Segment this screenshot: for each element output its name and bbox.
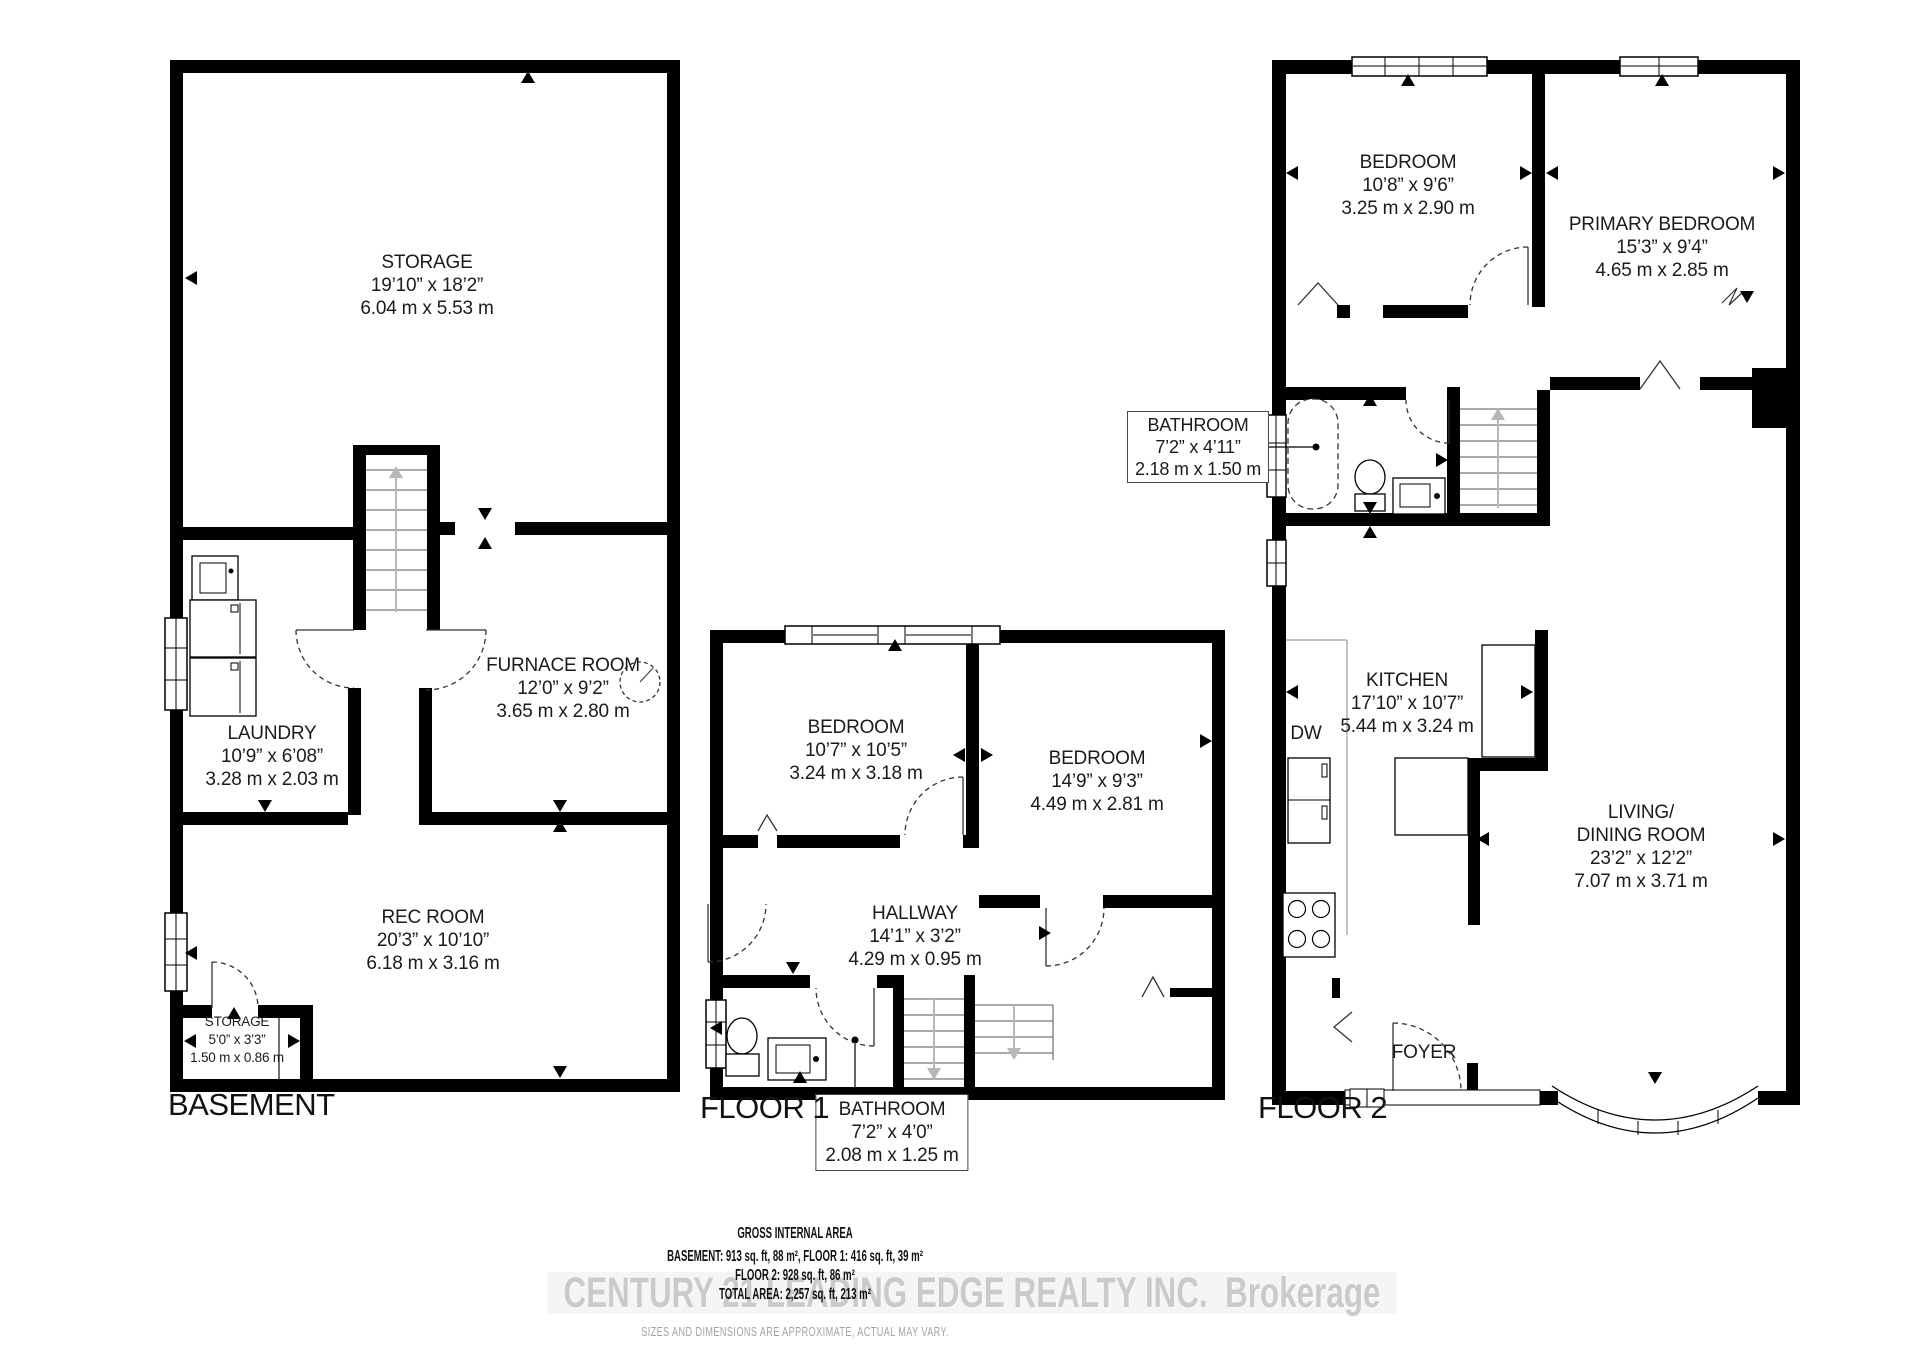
room-name: FURNACE ROOM [486,654,640,677]
floor1-plan [706,626,1225,1100]
room-label-rec-room: REC ROOM 20’3” x 10’10” 6.18 m x 3.16 m [366,906,499,975]
fixtures [726,1018,826,1080]
room-label-bedroom2: BEDROOM 14’9” x 9’3” 4.49 m x 2.81 m [1030,747,1163,816]
room-size-imperial: 15’3” x 9’4” [1569,236,1755,259]
direction-markers [710,639,1212,1083]
bay-window [1552,1086,1758,1135]
room-size-imperial: 5’0” x 3’3” [190,1031,284,1049]
room-label-living-dining: LIVING/ DINING ROOM 23’2” x 12’2” 7.07 m… [1574,801,1707,893]
callout-leader [852,1037,859,1095]
door [816,988,874,1046]
window [1352,57,1487,76]
room-label-bedroom: BEDROOM 10’8” x 9’6” 3.25 m x 2.90 m [1341,151,1474,220]
room-label-bedroom1: BEDROOM 10’7” x 10’5” 3.24 m x 3.18 m [789,716,922,785]
room-label-storage-small: STORAGE 5’0” x 3’3” 1.50 m x 0.86 m [190,1013,284,1067]
staircase [904,999,1053,1080]
stairs-down-arrow [1007,1048,1021,1060]
kitchen-island [1395,758,1468,835]
room-label-storage: STORAGE 19’10” x 18’2” 6.04 m x 5.53 m [360,251,493,320]
dishwasher-label: DW [1290,722,1321,745]
bathroom-callout-floor2: BATHROOM 7’2” x 4’11” 2.18 m x 1.50 m [1127,411,1269,483]
washer [190,600,256,657]
closet-door-glyph [1142,977,1164,997]
stairs-down-arrow [927,1068,941,1080]
floor1-title: FLOOR 1 [700,1090,829,1126]
room-size-imperial: 10’9” x 6’08” [205,745,338,768]
closet-door-glyph [758,815,777,831]
room-size-imperial: 23’2” x 12’2” [1574,847,1707,870]
bathroom-callout-floor1: BATHROOM 7’2” x 4’0” 2.08 m x 1.25 m [815,1094,968,1171]
bathroom-sink [1393,478,1445,514]
toilet [726,1018,759,1076]
window [1267,540,1286,586]
door [905,777,963,835]
room-name: BEDROOM [1030,747,1163,770]
size-disclaimer: SIZES AND DIMENSIONS ARE APPROXIMATE, AC… [641,1324,949,1339]
room-name: STORAGE [360,251,493,274]
gross-area-line: FLOOR 2: 928 sq. ft, 86 m² [667,1266,923,1285]
room-label-hallway: HALLWAY 14’1” x 3’2” 4.29 m x 0.95 m [848,902,981,971]
room-size-imperial: 19’10” x 18’2” [360,274,493,297]
window [1620,57,1698,76]
window [706,1000,726,1068]
floor2-title: FLOOR 2 [1258,1090,1387,1126]
walls [710,630,1225,1100]
room-size-metric: 3.28 m x 2.03 m [205,768,338,791]
room-label-furnace: FURNACE ROOM 12’0” x 9’2” 3.65 m x 2.80 … [486,654,640,723]
stairs-up-arrow [389,466,403,478]
room-size-imperial: 10’8” x 9’6” [1341,174,1474,197]
stairs-up-arrow [1491,408,1505,420]
appliance-abbr: DW [1290,722,1321,745]
closet-door-glyph [1334,1012,1352,1042]
room-name: DINING ROOM [1574,824,1707,847]
gross-area-summary: GROSS INTERNAL AREA BASEMENT: 913 sq. ft… [667,1224,923,1304]
room-name: LAUNDRY [205,722,338,745]
window [785,626,1000,644]
closet-door-glyph [1640,361,1680,389]
door [296,630,354,688]
room-label-primary-bedroom: PRIMARY BEDROOM 15’3” x 9’4” 4.65 m x 2.… [1569,213,1755,282]
gross-area-title: GROSS INTERNAL AREA [667,1224,923,1243]
room-size-metric: 1.50 m x 0.86 m [190,1049,284,1067]
closet-door-glyph [1298,283,1338,305]
room-size-metric: 6.04 m x 5.53 m [360,297,493,320]
room-size-imperial: 12’0” x 9’2” [486,677,640,700]
room-size-metric: 2.18 m x 1.50 m [1135,458,1261,480]
door [1470,247,1528,305]
room-size-imperial: 14’1” x 3’2” [848,925,981,948]
chimney [1752,368,1786,428]
bathroom-sink [768,1038,826,1080]
room-size-metric: 4.49 m x 2.81 m [1030,793,1163,816]
fridge [1288,758,1330,843]
room-size-metric: 4.29 m x 0.95 m [848,948,981,971]
room-size-metric: 3.24 m x 3.18 m [789,762,922,785]
door [1046,908,1104,966]
room-size-imperial: 17’10” x 10’7” [1340,692,1473,715]
floorplan-page: STORAGE 19’10” x 18’2” 6.04 m x 5.53 m F… [0,0,1920,1358]
room-name: PRIMARY BEDROOM [1569,213,1755,236]
room-size-imperial: 7’2” x 4’11” [1135,436,1261,458]
room-size-metric: 3.65 m x 2.80 m [486,700,640,723]
room-size-imperial: 7’2” x 4’0” [825,1121,958,1144]
room-name: HALLWAY [848,902,981,925]
room-size-metric: 5.44 m x 3.24 m [1340,715,1473,738]
room-name: BATHROOM [1135,414,1261,436]
bathtub [1288,399,1338,509]
laundry-sink [192,556,238,600]
room-size-imperial: 10’7” x 10’5” [789,739,922,762]
window [165,618,187,710]
room-size-imperial: 14’9” x 9’3” [1030,770,1163,793]
room-name: BEDROOM [1341,151,1474,174]
room-label-foyer: FOYER [1392,1041,1456,1064]
pantry-cabinet [1482,645,1535,757]
basement-title: BASEMENT [168,1087,335,1123]
door [426,630,486,690]
room-name: BATHROOM [825,1098,958,1121]
room-size-metric: 7.07 m x 3.71 m [1574,870,1707,893]
room-name: LIVING/ [1574,801,1707,824]
room-size-metric: 3.25 m x 2.90 m [1341,197,1474,220]
window [165,913,187,991]
dryer [190,658,256,716]
door [1406,400,1449,443]
room-name: STORAGE [190,1013,284,1031]
room-size-imperial: 20’3” x 10’10” [366,929,499,952]
room-label-kitchen: KITCHEN 17’10” x 10’7” 5.44 m x 3.24 m [1340,669,1473,738]
room-name: BEDROOM [789,716,922,739]
gross-area-line: TOTAL AREA: 2,257 sq. ft, 213 m² [667,1285,923,1304]
door [212,962,258,1008]
room-name: FOYER [1392,1041,1456,1064]
room-size-metric: 6.18 m x 3.16 m [366,952,499,975]
room-label-laundry: LAUNDRY 10’9” x 6’08” 3.28 m x 2.03 m [205,722,338,791]
window [1267,415,1286,497]
wall-break-glyph [1722,288,1744,305]
stove [1283,893,1335,957]
room-size-metric: 4.65 m x 2.85 m [1569,259,1755,282]
gross-area-line: BASEMENT: 913 sq. ft, 88 m², FLOOR 1: 41… [667,1247,923,1266]
staircase [366,466,427,612]
staircase [1460,408,1537,508]
room-name: KITCHEN [1340,669,1473,692]
room-name: REC ROOM [366,906,499,929]
room-size-metric: 2.08 m x 1.25 m [825,1144,958,1167]
